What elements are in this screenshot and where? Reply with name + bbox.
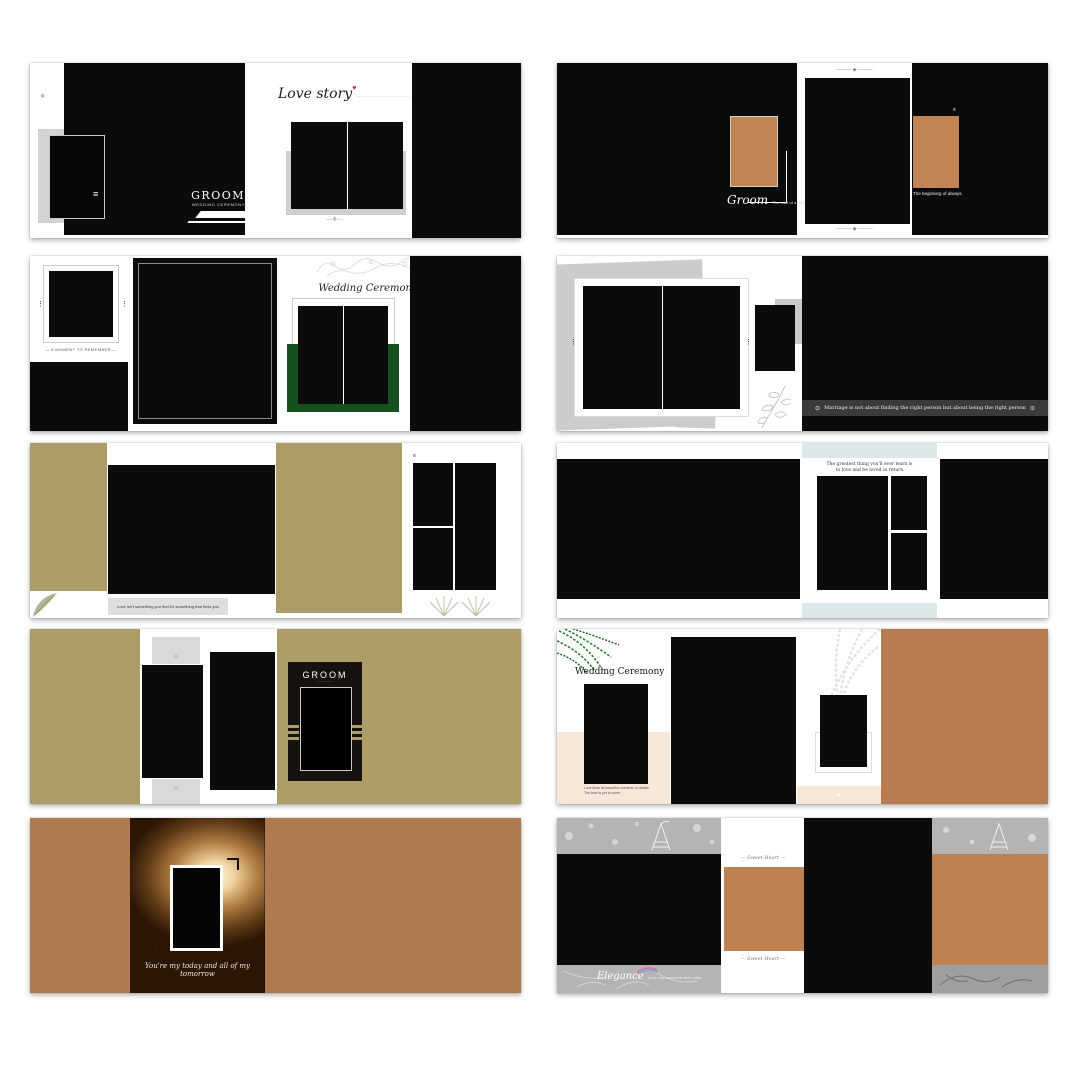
photo-placeholder — [671, 637, 796, 804]
fern-art — [428, 596, 494, 617]
photo-placeholder — [805, 78, 910, 224]
script-ornament: — Sweet Heart — — [721, 956, 805, 962]
script-ornament: — Sweet Heart — — [721, 855, 805, 861]
photo-placeholder — [583, 286, 740, 409]
diamond-ornament-icon: ❖ — [40, 93, 45, 100]
band-ornament: · ⊙ · — [152, 654, 200, 660]
inner-border — [138, 263, 272, 419]
photo-placeholder — [291, 122, 403, 209]
blue-band — [802, 443, 937, 458]
photo-divider — [347, 122, 348, 209]
template-spread-9[interactable]: You're my today and all of my tomorrow — [30, 818, 521, 993]
photo-placeholder — [300, 687, 352, 771]
photo-placeholder — [142, 665, 203, 778]
quote-text: Marriage is not about finding the right … — [824, 405, 1026, 411]
photo-placeholder — [557, 854, 721, 965]
stripe-ornament — [286, 725, 299, 740]
corner-icon: ≡ — [413, 453, 416, 459]
template-grid: ≡ ❖ GROOM WEDDING CEREMONY Love story♥··… — [0, 0, 1080, 1080]
arrow-ornament-bottom: ——— ◆ ——— — [797, 226, 912, 232]
template-spread-2[interactable]: Groom The start of a beautiful forever —… — [557, 63, 1048, 238]
photo-placeholder — [455, 463, 496, 590]
template-spread-3[interactable]: ⋮ ⋮ — A MOMENT TO REMEMBER — Wedding Cer… — [30, 256, 521, 431]
quote-bar: ⊙ Marriage is not about finding the righ… — [802, 400, 1048, 416]
photo-divider — [662, 286, 663, 409]
photo-placeholder — [755, 305, 795, 371]
tan-block — [932, 854, 1048, 965]
photo-placeholder — [30, 362, 128, 431]
leaf-art — [32, 592, 58, 618]
ceremony-title: Wedding Ceremony — [575, 667, 664, 677]
template-spread-8[interactable]: Wedding Ceremony Love finds its beautifu… — [557, 629, 1048, 804]
ribbon — [195, 211, 278, 218]
quote-icon: ⊙ — [815, 405, 820, 412]
photo-frame — [49, 135, 105, 219]
caption-text: You're my today and all of my tomorrow — [130, 962, 265, 978]
gray-texture-band — [932, 818, 1048, 854]
template-spread-10[interactable]: Elegance is the only beauty that never f… — [557, 818, 1048, 993]
photo-placeholder — [804, 818, 932, 993]
template-spread-1[interactable]: ≡ ❖ GROOM WEDDING CEREMONY Love story♥··… — [30, 63, 521, 238]
photo-placeholder — [170, 865, 223, 951]
ornament-icon: —❖— — [326, 216, 343, 223]
caption-block: The greatest thing you'll ever learn is … — [802, 462, 937, 474]
photo-placeholder — [410, 256, 521, 431]
diamond-ornament-icon: ◈ — [837, 792, 841, 798]
quote-icon: ⊙ — [1030, 405, 1035, 412]
moment-caption: — A MOMENT TO REMEMBER — — [33, 347, 129, 352]
floral-sketch-art — [313, 256, 425, 280]
template-spread-7[interactable]: · ⊙ · · ⊙ · GROOM ············· — [30, 629, 521, 804]
corner-bracket — [156, 948, 165, 962]
photo-placeholder — [298, 306, 388, 404]
photo-placeholder — [413, 463, 453, 526]
photo-placeholder — [210, 652, 275, 790]
template-spread-6[interactable]: The greatest thing you'll ever learn is … — [557, 443, 1048, 618]
olive-block — [30, 443, 107, 591]
photo-placeholder — [413, 528, 453, 590]
arrow-ornament-top: ——— ◆ ——— — [797, 67, 912, 73]
photo-placeholder — [820, 695, 867, 767]
photo-placeholder — [557, 459, 800, 599]
template-spread-5[interactable]: Love isn't something you find it's somet… — [30, 443, 521, 618]
tan-block — [881, 629, 1048, 804]
caption-text: Love isn't something you find it's somet… — [117, 604, 219, 609]
ribbon-line — [187, 221, 277, 223]
photo-placeholder — [891, 476, 927, 530]
caption-line: The best is yet to come — [584, 791, 674, 796]
dotted-line: ····················· — [356, 94, 412, 100]
caption-bar: Love isn't something you find it's somet… — [108, 598, 228, 615]
photo-placeholder — [412, 63, 521, 238]
corner-bracket — [227, 858, 239, 870]
heart-icon: ♥ — [352, 85, 356, 92]
brush-swash-art — [635, 962, 659, 972]
dots-ornament-icon: ⋮ — [745, 338, 752, 346]
caption-block: Love finds its beautiful moments in deta… — [584, 786, 674, 795]
groom-underline: ············· — [288, 680, 362, 684]
photo-placeholder — [584, 684, 648, 784]
photo-placeholder-tan — [730, 116, 778, 187]
dots-ornament-icon: ⋮ — [121, 300, 128, 308]
dots-ornament-icon: ⋮ — [570, 338, 577, 346]
blue-band — [802, 603, 937, 618]
photo-placeholder-tan — [913, 116, 959, 188]
groom-title: GROOM — [170, 189, 245, 202]
groom-title-block: GROOM WEDDING CEREMONY — [170, 189, 245, 207]
photo-placeholder — [49, 271, 113, 337]
gray-texture-band — [932, 965, 1048, 993]
photo-placeholder — [108, 465, 275, 594]
photo-divider — [343, 306, 344, 404]
caption-line: to love and be loved in return — [802, 468, 937, 474]
band-ornament: · ⊙ · — [152, 785, 200, 791]
photo-placeholder — [940, 459, 1048, 599]
template-spread-4[interactable]: ⋮ ⋮ ⊙ Marriage is not about finding the … — [557, 256, 1048, 431]
corner-icon: ≡ — [953, 107, 956, 113]
groom-subtitle: WEDDING CEREMONY — [170, 202, 245, 207]
tan-block — [265, 818, 521, 993]
blush-band: ◈ — [797, 786, 881, 804]
love-story-heading: Love story♥····················· — [278, 85, 412, 103]
photo-placeholder — [133, 258, 277, 424]
love-story-title: Love story — [278, 86, 352, 102]
groom-script-title: Groom — [727, 193, 768, 207]
gray-band — [152, 779, 200, 804]
photo-placeholder — [891, 533, 927, 590]
tan-block — [30, 818, 130, 993]
groom-title: GROOM — [288, 670, 362, 680]
tan-block — [724, 867, 804, 951]
elegance-caption: is the only beauty that never fades — [648, 976, 701, 980]
grip-icon: ≡ — [93, 189, 98, 199]
dots-ornament-icon: ⋮ — [37, 300, 44, 308]
stripe-ornament — [352, 725, 365, 740]
photo-placeholder — [817, 476, 888, 590]
gray-texture-band — [557, 818, 721, 854]
beginning-caption: The beginning of always. — [913, 191, 963, 196]
leaf-sketch-art — [757, 384, 791, 430]
olive-block — [276, 443, 402, 613]
